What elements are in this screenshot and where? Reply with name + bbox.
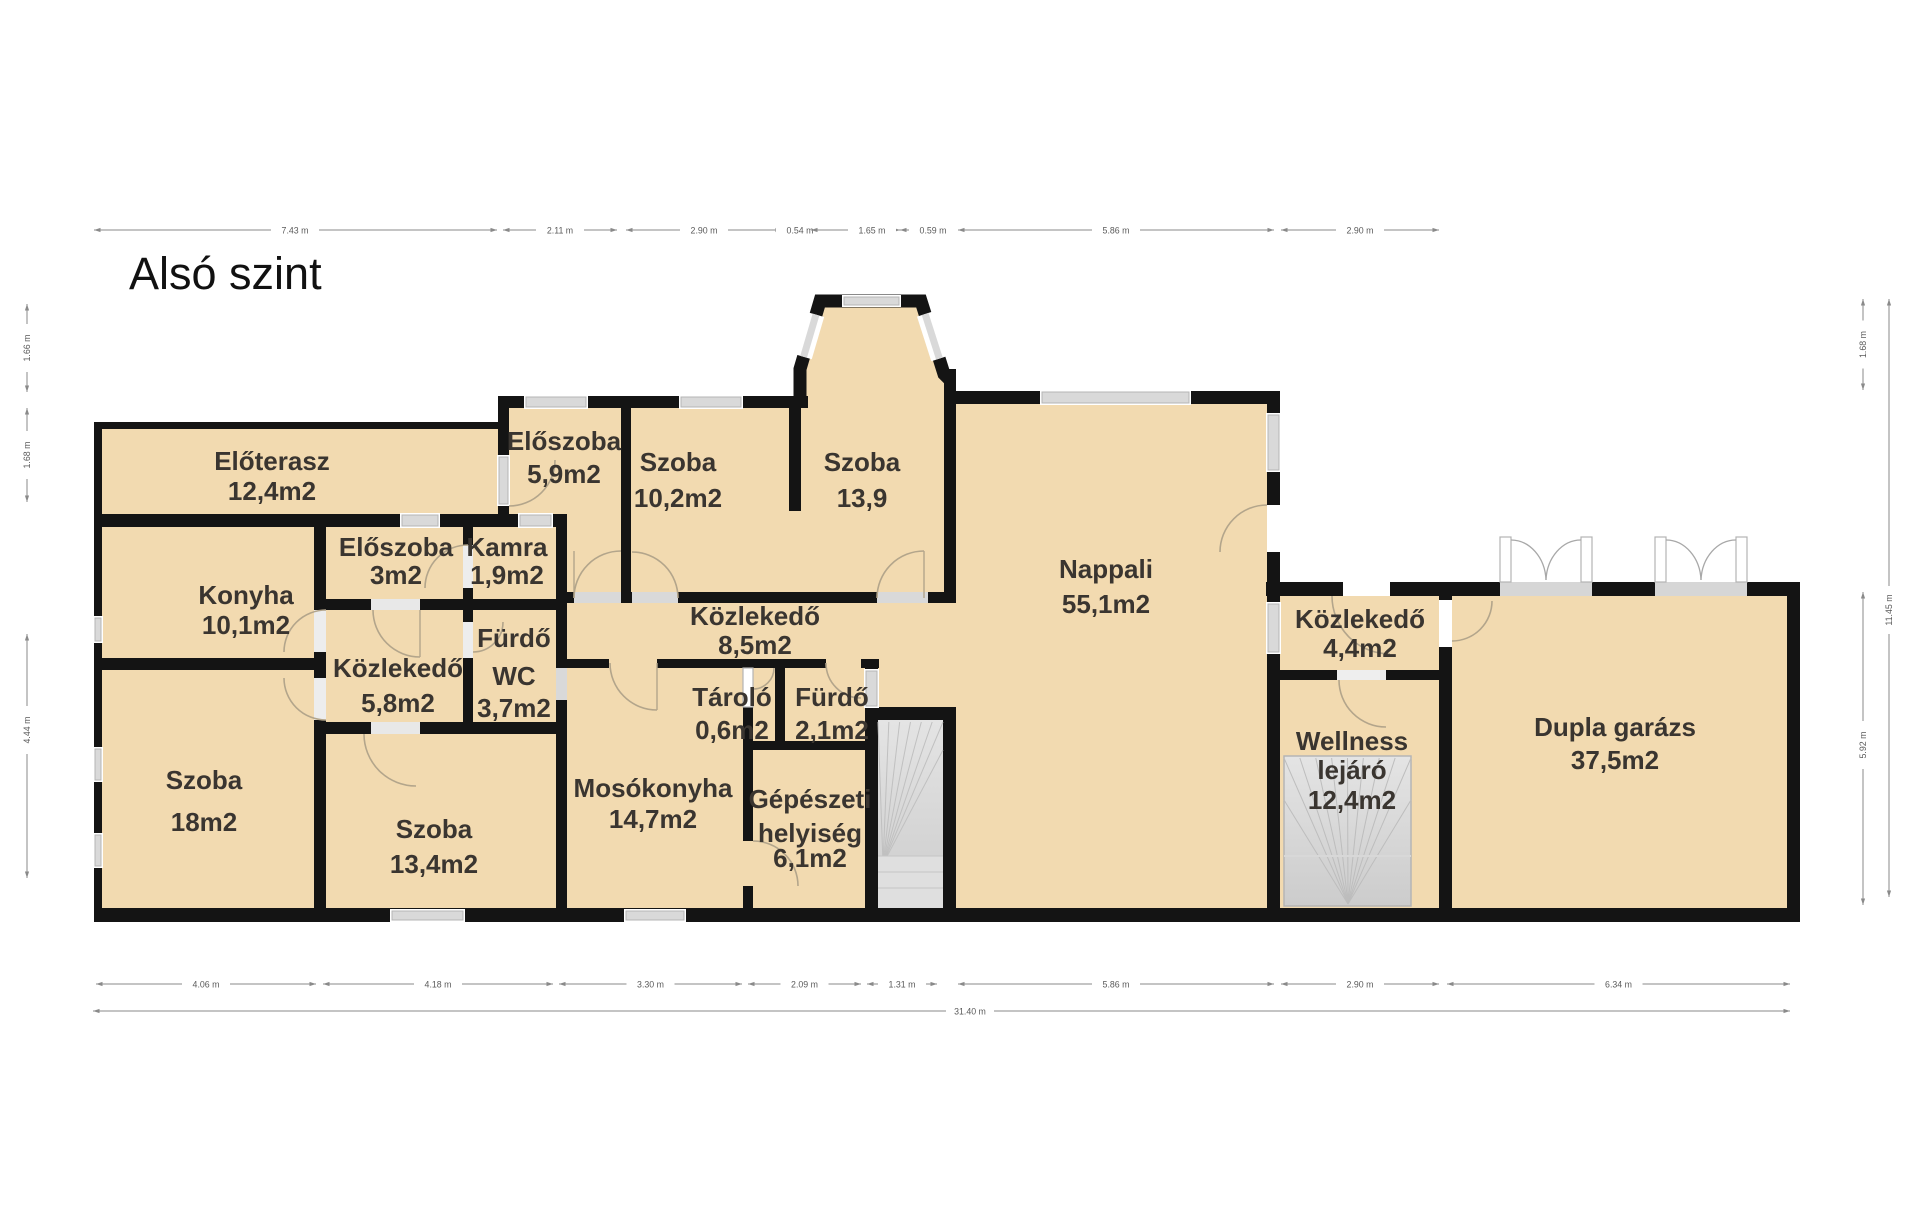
svg-text:5.92 m: 5.92 m — [1858, 732, 1868, 759]
svg-text:Szoba: Szoba — [166, 765, 243, 795]
svg-text:Kamra: Kamra — [467, 532, 548, 562]
svg-text:5.86 m: 5.86 m — [1103, 226, 1130, 236]
svg-text:lejáró: lejáró — [1317, 755, 1386, 785]
svg-text:12,4m2: 12,4m2 — [228, 476, 316, 506]
svg-text:1,9m2: 1,9m2 — [470, 560, 544, 590]
svg-text:Előterasz: Előterasz — [214, 446, 330, 476]
svg-text:Közlekedő: Közlekedő — [333, 653, 463, 683]
svg-text:0.59 m: 0.59 m — [920, 226, 947, 236]
svg-text:8,5m2: 8,5m2 — [718, 630, 792, 660]
svg-text:5.86 m: 5.86 m — [1103, 980, 1130, 990]
svg-text:1.66 m: 1.66 m — [22, 335, 32, 362]
svg-text:12,4m2: 12,4m2 — [1308, 785, 1396, 815]
svg-text:3.30 m: 3.30 m — [637, 980, 664, 990]
svg-text:2.90 m: 2.90 m — [691, 226, 718, 236]
svg-text:2,1m2: 2,1m2 — [795, 715, 869, 745]
svg-text:Gépészeti: Gépészeti — [749, 784, 872, 814]
svg-text:Alsó szint: Alsó szint — [129, 248, 322, 299]
svg-text:Fürdő: Fürdő — [477, 623, 551, 653]
svg-text:2.09 m: 2.09 m — [791, 980, 818, 990]
svg-text:2.90 m: 2.90 m — [1347, 226, 1374, 236]
svg-text:4.18 m: 4.18 m — [425, 980, 452, 990]
svg-text:2.90 m: 2.90 m — [1347, 980, 1374, 990]
svg-text:6.34 m: 6.34 m — [1605, 980, 1632, 990]
svg-text:Előszoba: Előszoba — [507, 426, 622, 456]
svg-text:4.44 m: 4.44 m — [22, 717, 32, 744]
svg-text:Dupla garázs: Dupla garázs — [1534, 712, 1696, 742]
svg-text:5,8m2: 5,8m2 — [361, 688, 435, 718]
svg-text:0,6m2: 0,6m2 — [695, 715, 769, 745]
svg-text:10,1m2: 10,1m2 — [202, 610, 290, 640]
svg-text:13,9: 13,9 — [837, 483, 888, 513]
svg-text:5,9m2: 5,9m2 — [527, 459, 601, 489]
svg-text:Szoba: Szoba — [824, 447, 901, 477]
svg-text:Előszoba: Előszoba — [339, 532, 454, 562]
svg-text:WC: WC — [492, 661, 536, 691]
svg-text:14,7m2: 14,7m2 — [609, 804, 697, 834]
svg-text:Közlekedő: Közlekedő — [1295, 604, 1425, 634]
svg-text:3,7m2: 3,7m2 — [477, 693, 551, 723]
svg-text:Wellness: Wellness — [1296, 726, 1408, 756]
svg-text:3m2: 3m2 — [370, 560, 422, 590]
svg-text:Szoba: Szoba — [640, 447, 717, 477]
svg-text:Közlekedő: Közlekedő — [690, 601, 820, 631]
svg-text:Tároló: Tároló — [692, 682, 771, 712]
svg-text:13,4m2: 13,4m2 — [390, 849, 478, 879]
svg-text:2.11 m: 2.11 m — [547, 226, 573, 236]
svg-text:1.68 m: 1.68 m — [1858, 331, 1868, 358]
svg-text:11.45 m: 11.45 m — [1884, 594, 1894, 625]
svg-text:Fürdő: Fürdő — [795, 682, 869, 712]
svg-text:18m2: 18m2 — [171, 807, 238, 837]
svg-text:55,1m2: 55,1m2 — [1062, 589, 1150, 619]
svg-text:10,2m2: 10,2m2 — [634, 483, 722, 513]
svg-text:1.68 m: 1.68 m — [22, 442, 32, 469]
svg-text:1.31 m: 1.31 m — [889, 980, 916, 990]
svg-text:31.40 m: 31.40 m — [954, 1007, 986, 1017]
svg-text:Mosókonyha: Mosókonyha — [574, 773, 733, 803]
svg-text:Szoba: Szoba — [396, 814, 473, 844]
svg-text:1.65 m: 1.65 m — [859, 226, 886, 236]
svg-text:4.06 m: 4.06 m — [193, 980, 220, 990]
svg-text:Nappali: Nappali — [1059, 554, 1153, 584]
svg-text:37,5m2: 37,5m2 — [1571, 745, 1659, 775]
svg-text:6,1m2: 6,1m2 — [773, 843, 847, 873]
svg-text:7.43 m: 7.43 m — [282, 226, 309, 236]
svg-text:4,4m2: 4,4m2 — [1323, 633, 1397, 663]
svg-text:0.54 m: 0.54 m — [787, 226, 814, 236]
svg-text:Konyha: Konyha — [198, 580, 294, 610]
